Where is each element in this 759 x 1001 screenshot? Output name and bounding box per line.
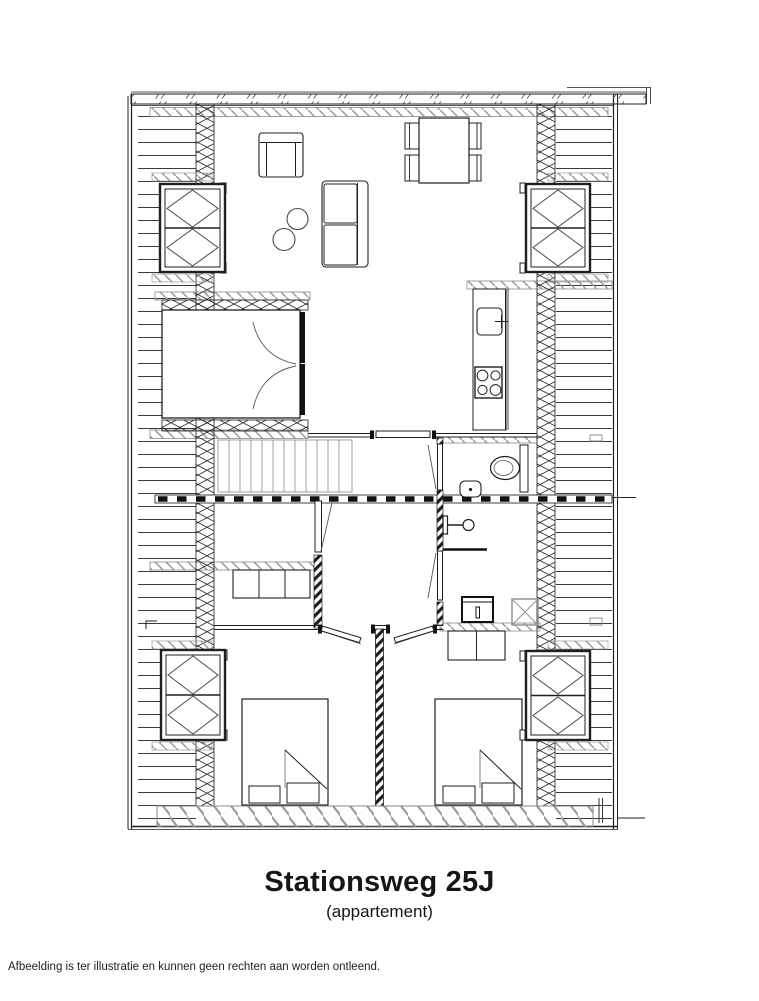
- disclaimer-text: Afbeelding is ter illustratie en kunnen …: [8, 961, 380, 973]
- pillow: [287, 783, 319, 803]
- floorplan-page: Stationsweg 25J (appartement) Afbeelding…: [0, 0, 759, 1001]
- storage-door-leaf-bottom: [300, 364, 305, 415]
- wall-right-top: [537, 104, 555, 184]
- window-bottom-right: [520, 651, 590, 740]
- dining-table-icon: [419, 118, 469, 183]
- side-table-icon: [273, 229, 295, 251]
- door-jamb: [371, 625, 375, 634]
- side-table-icon: [287, 209, 308, 230]
- pillow: [443, 786, 475, 803]
- hall-door-leaf: [376, 431, 430, 438]
- staircase: [218, 440, 352, 492]
- pillow: [249, 786, 280, 803]
- bed-1: [242, 699, 328, 805]
- plan-subtitle: (appartement): [0, 902, 759, 922]
- storage-door-leaf-top: [300, 312, 305, 363]
- window-top-left: [160, 183, 226, 273]
- bathroom-door-leaf: [438, 551, 443, 600]
- door-jamb: [432, 431, 436, 440]
- door-jamb: [370, 431, 374, 440]
- washing-machine-icon: [462, 597, 493, 622]
- door-jamb: [386, 625, 390, 634]
- wall-left-top: [196, 104, 214, 184]
- hand-basin-icon: [460, 481, 481, 497]
- wardrobe-icon: [233, 570, 310, 598]
- chair-icon: [405, 155, 420, 181]
- window-bottom-left: [161, 650, 227, 740]
- armchair-icon: [259, 133, 303, 177]
- sofa-icon: [322, 181, 368, 267]
- wall-right-mid: [537, 272, 555, 650]
- chair-icon: [405, 123, 420, 149]
- beam-left-mid: [155, 292, 310, 300]
- kitchen: [473, 289, 508, 430]
- section-line: [155, 495, 636, 503]
- bedroom2-cabinet: [448, 631, 505, 660]
- bed-2: [435, 699, 522, 805]
- beam-wardrobe: [150, 562, 315, 570]
- bedroom-partition-wall: [376, 629, 384, 806]
- stove-icon: [475, 367, 502, 398]
- top-facade-band: [131, 94, 646, 104]
- caption-block: Stationsweg 25J (appartement): [0, 866, 759, 922]
- pillow: [482, 783, 514, 803]
- plan-title: Stationsweg 25J: [0, 866, 759, 899]
- wardrobe-room-door-leaf: [315, 501, 322, 552]
- window-top-right: [520, 183, 590, 273]
- wc-door-leaf: [438, 444, 443, 490]
- beam-wc-top: [437, 437, 537, 443]
- storage-room: [162, 300, 308, 431]
- floor-plan-drawing: [0, 0, 759, 845]
